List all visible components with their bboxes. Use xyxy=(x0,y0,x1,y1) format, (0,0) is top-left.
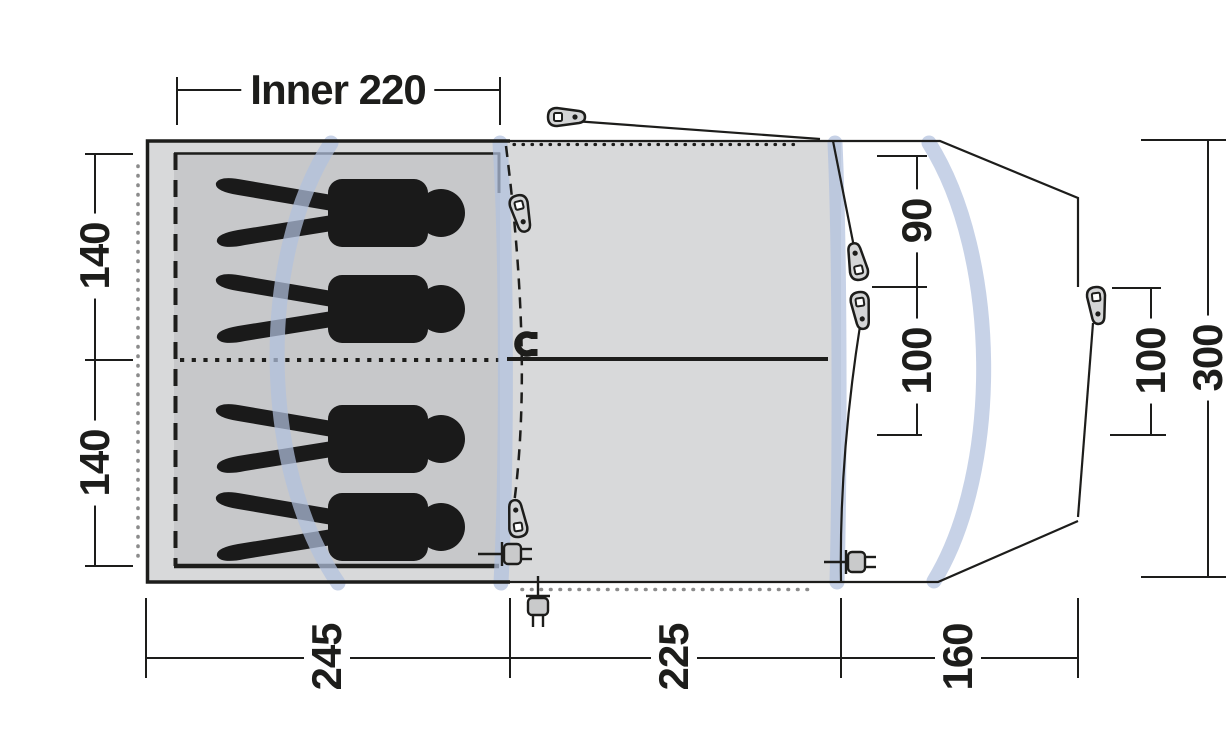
mid-pole xyxy=(500,143,505,583)
dim-label-bedroom-depth-top: 140 xyxy=(72,213,118,298)
dim-label-bedroom-length: 245 xyxy=(304,614,350,699)
dim-label-front-upper: 90 xyxy=(894,190,940,253)
dim-label-inner-width: Inner 220 xyxy=(241,67,434,113)
dim-label-living-length: 225 xyxy=(651,614,697,699)
dim-label-porch-length: 160 xyxy=(935,614,981,699)
dim-label-porch-door: 100 xyxy=(1128,318,1174,403)
zipper-pull-icon xyxy=(1086,286,1108,325)
tent-floorplan: Inner 220 140 140 90 100 100 300 245 225… xyxy=(0,0,1230,748)
dim-label-total-depth: 300 xyxy=(1185,315,1230,400)
porch-door-edge xyxy=(1078,323,1093,517)
dim-label-bedroom-depth-bottom: 140 xyxy=(72,420,118,505)
door-tieback-line xyxy=(574,121,820,139)
zipper-pull-icon xyxy=(844,242,869,282)
power-plug-icon xyxy=(526,576,550,627)
dim-label-front-lower: 100 xyxy=(894,318,940,403)
zipper-pull-icon xyxy=(548,108,585,126)
zipper-pull-icon xyxy=(850,291,873,330)
floorplan-drawing xyxy=(0,0,1230,748)
front-pole xyxy=(835,143,839,582)
